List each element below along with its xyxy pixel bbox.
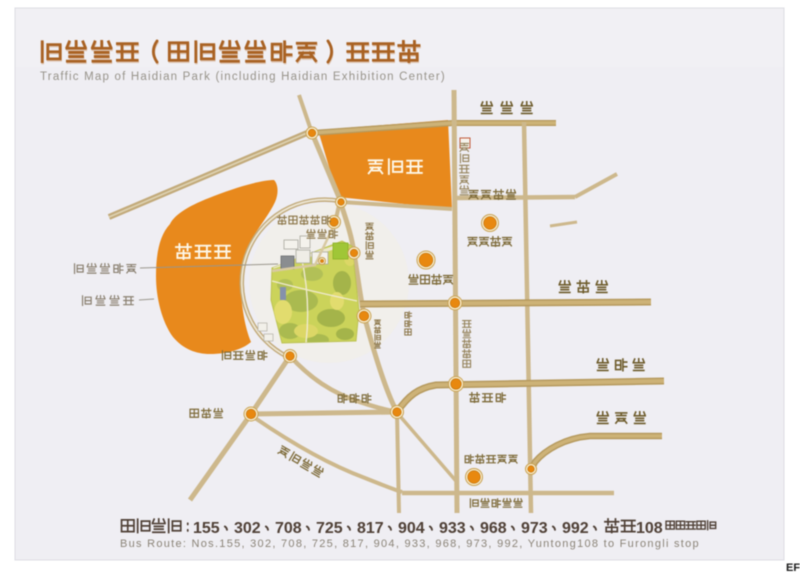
svg-text:817: 817 [357,520,384,537]
svg-text:725: 725 [316,520,343,537]
svg-text:708: 708 [275,520,302,537]
svg-text:904: 904 [398,520,425,537]
svg-text:302: 302 [234,520,261,537]
svg-text:108: 108 [636,520,663,537]
svg-text:Traffic Map of Haidian Park (i: Traffic Map of Haidian Park (including H… [40,71,446,83]
svg-text:Bus Route: Nos.155, 302, 708,: Bus Route: Nos.155, 302, 708, 725, 817, … [120,538,700,550]
svg-text:933: 933 [439,520,466,537]
svg-text:968: 968 [480,520,507,537]
svg-text:992: 992 [562,520,589,537]
svg-text:EF: EF [786,562,800,574]
svg-text:155: 155 [193,520,220,537]
svg-text:973: 973 [521,520,548,537]
